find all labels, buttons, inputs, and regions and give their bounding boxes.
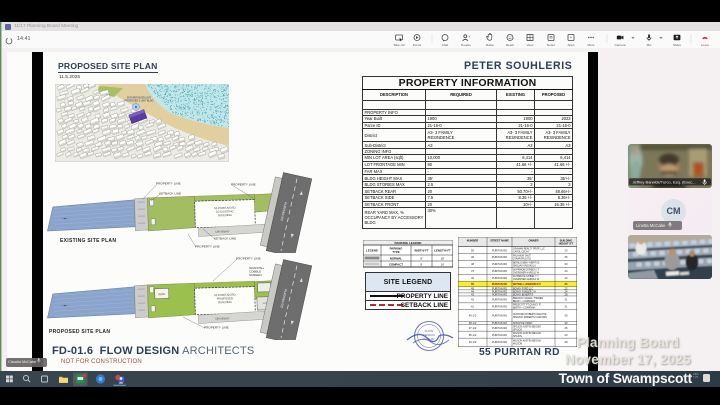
svg-text:PURITAN RD: PURITAN RD — [492, 327, 507, 330]
svg-text:PURITAN RD: PURITAN RD — [492, 283, 507, 286]
svg-text:NORMAL: NORMAL — [390, 257, 403, 261]
svg-text:Apps: Apps — [567, 43, 575, 47]
svg-text:SUPRINOB DOREEN J T: SUPRINOB DOREEN J T — [513, 269, 540, 271]
svg-text:30: 30 — [565, 314, 568, 318]
svg-text:PROPERTY LINE: PROPERTY LINE — [195, 244, 220, 248]
svg-text:LEGEND: LEGEND — [366, 249, 378, 253]
svg-text:DRIVEWAY: DRIVEWAY — [215, 316, 229, 320]
svg-text:Focus: Focus — [413, 43, 422, 47]
svg-text:DRIVEWAY: DRIVEWAY — [215, 229, 229, 233]
svg-text:STREET NAME: STREET NAME — [490, 239, 509, 243]
svg-text:24: 24 — [565, 269, 568, 273]
svg-text:Take ctrl: Take ctrl — [393, 43, 405, 47]
svg-text:PURITAN RD: PURITAN RD — [492, 299, 507, 302]
svg-text:SHELIAS KADOKULU: SHELIAS KADOKULU — [513, 264, 536, 267]
svg-text:WIDTH/ FT: WIDTH/ FT — [414, 249, 428, 253]
svg-text:41: 41 — [471, 304, 474, 308]
svg-text:TYPE: TYPE — [392, 250, 399, 254]
svg-text:PROPERTY LINE: PROPERTY LINE — [156, 181, 181, 185]
svg-text:LENGTH/ FT: LENGTH/ FT — [434, 249, 451, 253]
svg-text:18': 18' — [441, 257, 445, 261]
svg-text:35-1/2: 35-1/2 — [469, 333, 477, 337]
svg-text:PURITAN RD: PURITAN RD — [492, 249, 507, 252]
svg-text:16': 16' — [441, 263, 445, 267]
svg-text:BECKY + CORRADO: BECKY + CORRADO — [513, 300, 535, 303]
svg-text:35: 35 — [565, 282, 568, 286]
svg-text:33-1/2: 33-1/2 — [469, 340, 477, 344]
svg-text:PALANIUK JAUTI: PALANIUK JAUTI — [513, 254, 532, 257]
svg-text:25: 25 — [565, 326, 568, 330]
svg-text:React: React — [506, 43, 514, 47]
svg-text:PROPERTY LINE: PROPERTY LINE — [231, 182, 256, 186]
svg-text:Chat: Chat — [442, 43, 449, 47]
svg-text:SPILIOS AUSTIN/ BEGUM: SPILIOS AUSTIN/ BEGUM — [513, 325, 541, 328]
svg-text:OWNER: OWNER — [529, 239, 539, 243]
svg-text:31: 31 — [565, 298, 568, 302]
svg-text:BONNY BENERT R: BONNY BENERT R — [513, 295, 534, 297]
svg-text:BONNY FORD LLC: BONNY FORD LLC — [513, 288, 533, 290]
svg-text:50: 50 — [471, 248, 474, 252]
svg-text:SETBACK LINE: SETBACK LINE — [214, 236, 236, 240]
svg-text:23: 23 — [565, 248, 568, 252]
svg-text:BUILDING: BUILDING — [218, 300, 233, 304]
svg-text:NUMBER: NUMBER — [467, 239, 479, 243]
svg-text:55: 55 — [471, 282, 474, 286]
svg-text:OVERSHER HAROLD W: OVERSHER HAROLD W — [513, 271, 540, 274]
svg-text:PROPERTY LINE: PROPERTY LINE — [236, 256, 261, 260]
svg-text:Raise: Raise — [486, 43, 494, 47]
svg-text:PURITAN RD: PURITAN RD — [492, 263, 507, 266]
svg-text:COMPACT: COMPACT — [389, 263, 403, 267]
svg-text:View: View — [527, 43, 534, 47]
svg-text:Leave: Leave — [701, 43, 710, 47]
svg-text:48: 48 — [471, 262, 474, 266]
svg-text:SHELIGH ROBERTS CLIFFORD: SHELIGH ROBERTS CLIFFORD — [513, 317, 547, 319]
svg-text:SCREEN: SCREEN — [249, 273, 262, 277]
svg-text:+: + — [468, 35, 470, 39]
svg-text:OVERSHER GEROLD W: OVERSHER GEROLD W — [513, 279, 540, 281]
svg-text:PURITAN RD: PURITAN RD — [492, 315, 507, 318]
svg-text:PURITAN RD: PURITAN RD — [492, 277, 507, 280]
svg-text:←▬→: ←▬→ — [61, 304, 69, 307]
svg-text:Share: Share — [673, 43, 682, 47]
svg-text:BUILDING: BUILDING — [218, 213, 233, 217]
svg-text:47: 47 — [471, 269, 474, 273]
svg-text:PURITAN RD: PURITAN RD — [492, 256, 507, 259]
svg-text:Jeffrey Barwick/Turco, Esq. (E: Jeffrey Barwick/Turco, Esq. (Exec... — [633, 179, 696, 184]
svg-text:CAROL CECHY: CAROL CECHY — [513, 251, 530, 254]
svg-text:PARKING LEGEND: PARKING LEGEND — [395, 241, 423, 245]
svg-text:46: 46 — [471, 276, 474, 280]
svg-text:PRESCOTT FT QUINCY R: PRESCOTT FT QUINCY R — [513, 305, 541, 307]
svg-text:40-1/2: 40-1/2 — [469, 314, 477, 318]
svg-text:←▬→: ←▬→ — [61, 217, 69, 220]
svg-text:People: People — [461, 43, 471, 47]
svg-text:HEIGHT /FT: HEIGHT /FT — [559, 242, 574, 246]
svg-text:FLORENCE GOBIEL T J: FLORENCE GOBIEL T J — [513, 276, 538, 278]
svg-text:Mic: Mic — [647, 43, 652, 47]
svg-text:SURTORIV ROBERT KRAUTHE: SURTORIV ROBERT KRAUTHE — [513, 313, 547, 316]
svg-text:33: 33 — [565, 262, 568, 266]
svg-text:BETWELL LEWEBRICK P: BETWELL LEWEBRICK P — [513, 284, 541, 286]
svg-text:SETBACK LINE: SETBACK LINE — [159, 191, 181, 195]
svg-text:BERILIS BENY HERITUS: BERILIS BENY HERITUS — [513, 262, 540, 264]
svg-text:+: + — [570, 35, 573, 40]
svg-text:BONNY FOWLER J H: BONNY FOWLER J H — [513, 291, 536, 293]
svg-text:25: 25 — [565, 255, 568, 259]
svg-text:23: 23 — [565, 276, 568, 280]
svg-text:DECK: DECK — [158, 292, 166, 296]
svg-text:More: More — [587, 43, 594, 47]
svg-text:STAVROPULITIS: STAVROPULITIS — [513, 257, 531, 260]
svg-text:BERTH + CORRIVAN: BERTH + CORRIVAN — [513, 307, 536, 310]
svg-text:PROPOSED 3 UNIT BLDG: PROPOSED 3 UNIT BLDG — [125, 100, 154, 103]
svg-text:GRAHAM REALTY PROP. LLC: GRAHAM REALTY PROP. LLC — [513, 248, 545, 251]
svg-text:BRECKAY SIGNAL THOREN: BRECKAY SIGNAL THOREN — [513, 297, 543, 300]
svg-text:42: 42 — [471, 298, 474, 302]
svg-text:21: 21 — [565, 304, 568, 308]
svg-text:Notes: Notes — [547, 43, 556, 47]
svg-text:49: 49 — [471, 255, 474, 259]
svg-text:PURITAN RD: PURITAN RD — [492, 305, 507, 308]
svg-text:PROPERTY LINE: PROPERTY LINE — [204, 325, 229, 329]
svg-text:37-1/2: 37-1/2 — [469, 326, 477, 330]
svg-text:Camera: Camera — [614, 43, 625, 47]
svg-text:PURITAN RD: PURITAN RD — [492, 270, 507, 273]
